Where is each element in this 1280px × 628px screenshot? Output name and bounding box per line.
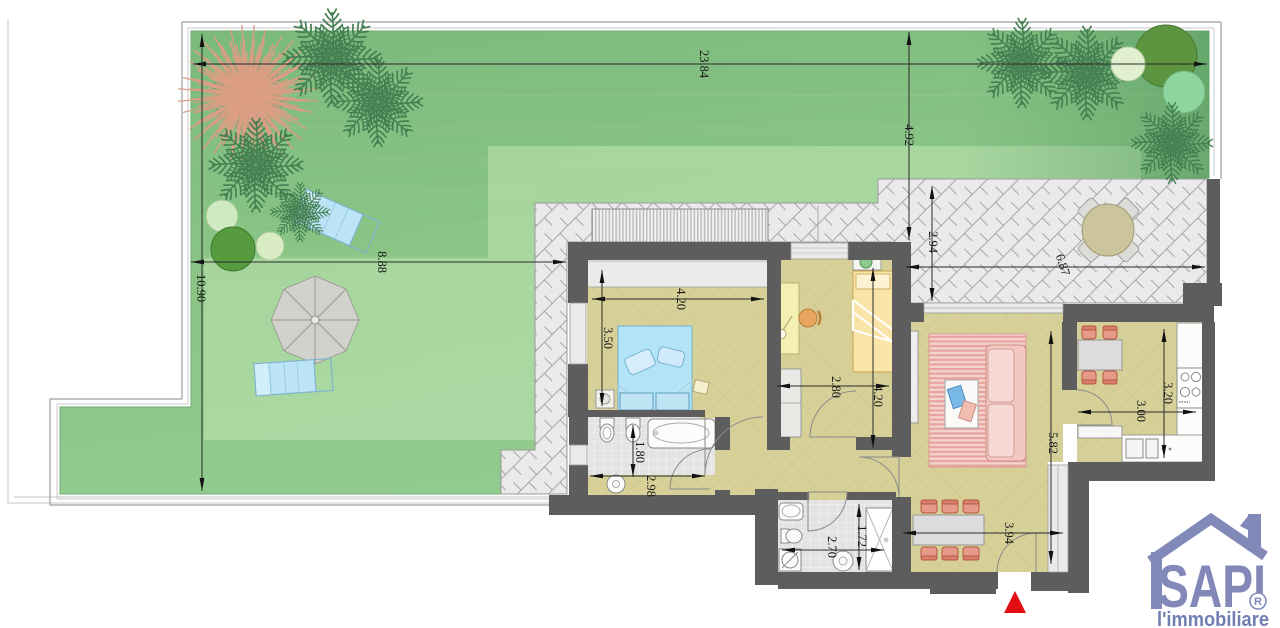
svg-text:2.94: 2.94: [926, 231, 940, 254]
svg-text:1.72: 1.72: [855, 525, 869, 547]
svg-text:10.90: 10.90: [194, 274, 208, 302]
svg-text:5.82: 5.82: [1046, 432, 1060, 454]
svg-text:3.20: 3.20: [1161, 382, 1175, 404]
svg-text:4.92: 4.92: [902, 124, 916, 146]
svg-text:2.70: 2.70: [825, 536, 839, 558]
svg-text:4.20: 4.20: [871, 385, 885, 407]
svg-text:1.80: 1.80: [633, 441, 647, 463]
svg-text:l'immobiliare: l'immobiliare: [1157, 609, 1269, 628]
svg-text:8.88: 8.88: [375, 251, 389, 273]
svg-text:4.20: 4.20: [674, 288, 688, 310]
svg-text:23.84: 23.84: [697, 50, 711, 79]
svg-text:2.98: 2.98: [644, 475, 658, 497]
svg-text:3.00: 3.00: [1134, 400, 1148, 422]
svg-text:2.80: 2.80: [829, 376, 843, 398]
svg-text:3.94: 3.94: [1002, 522, 1016, 545]
svg-text:R: R: [1254, 596, 1262, 608]
svg-text:3.50: 3.50: [601, 327, 615, 349]
